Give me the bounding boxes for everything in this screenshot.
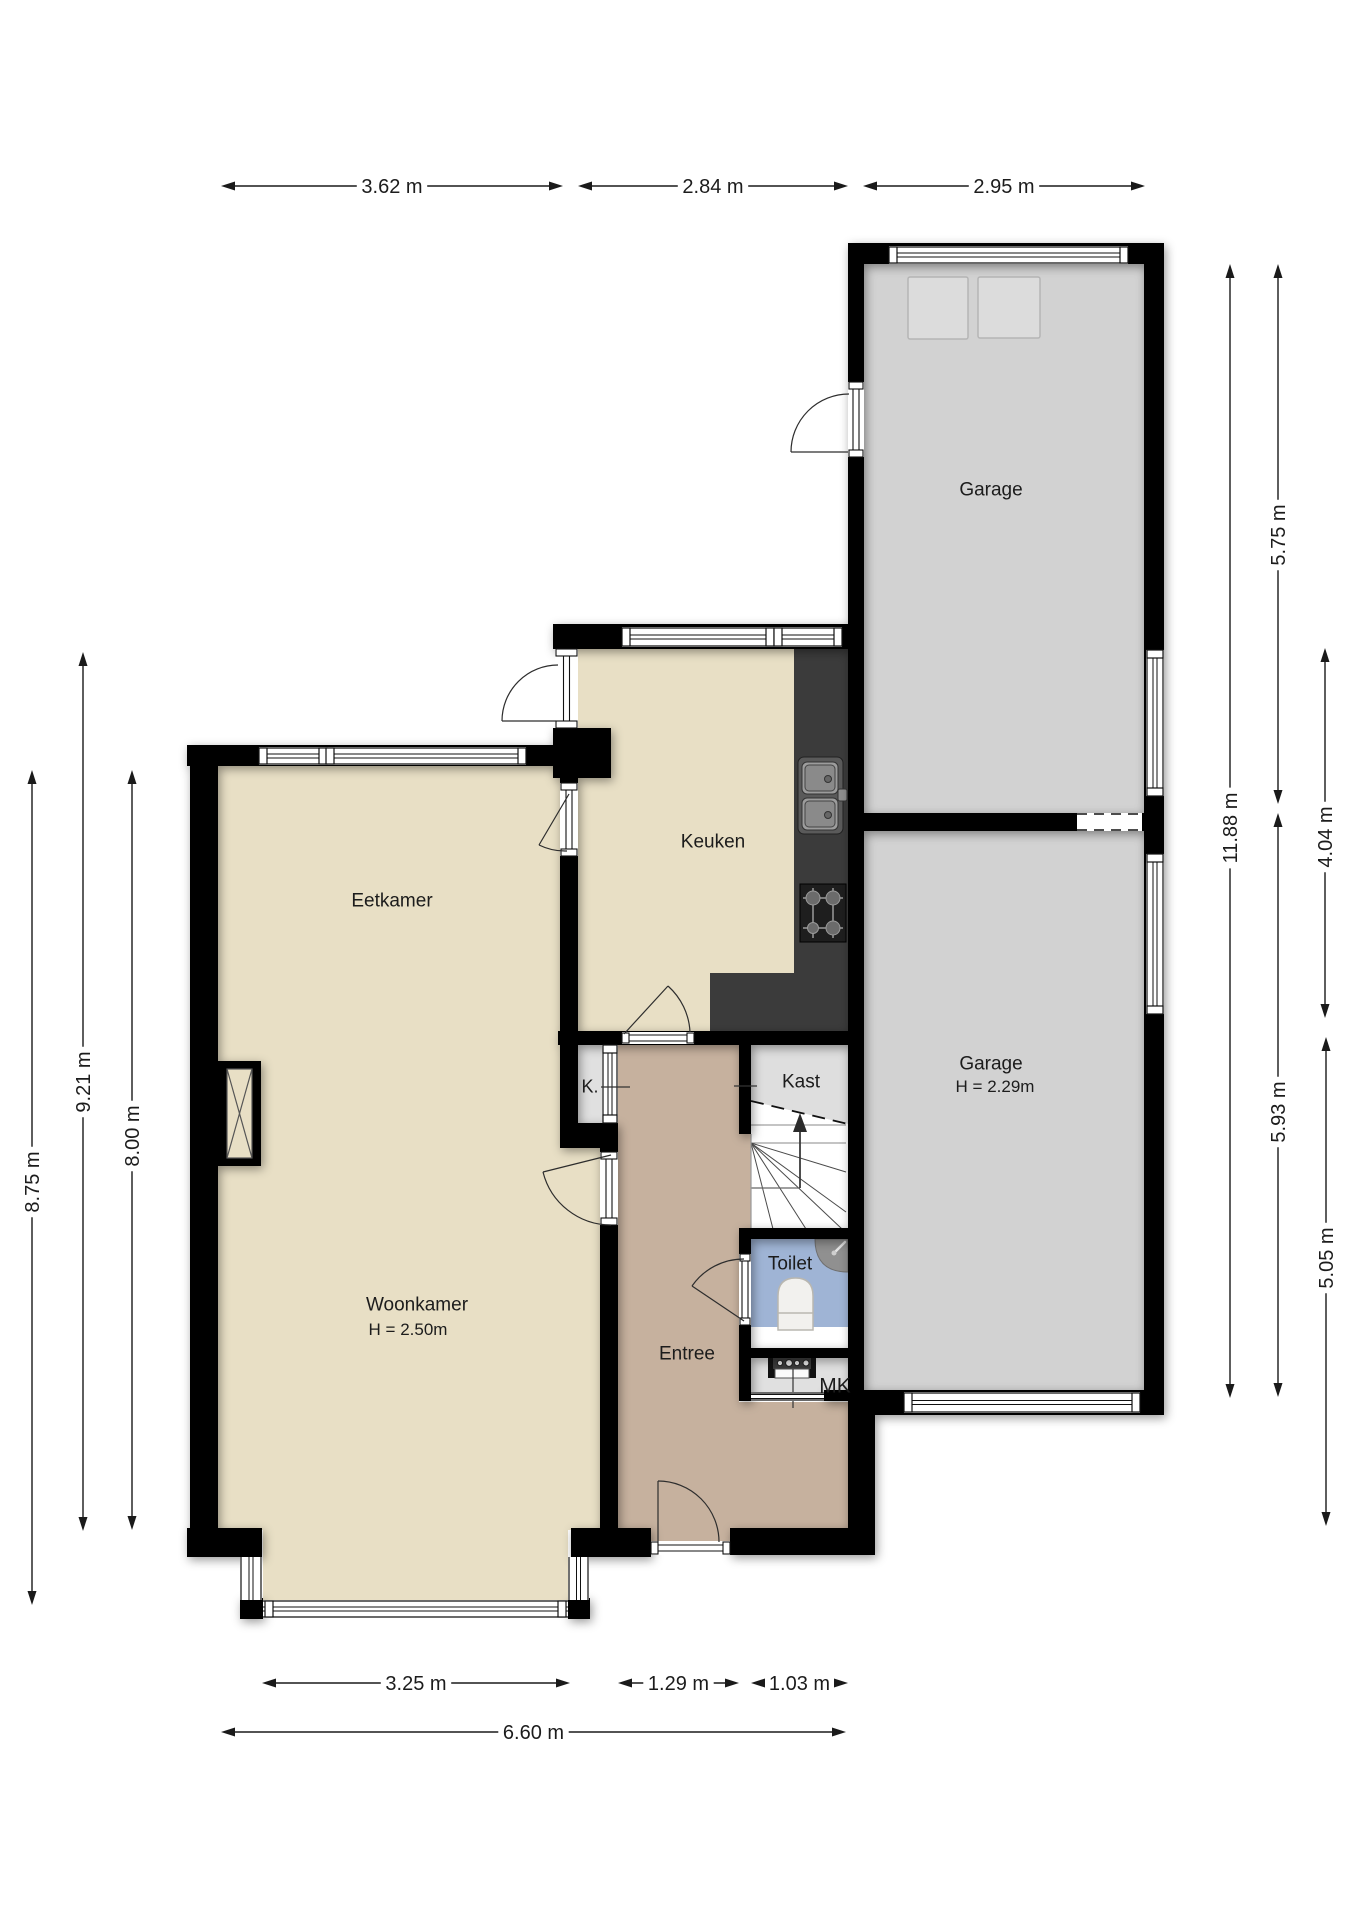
svg-text:6.60 m: 6.60 m [503, 1722, 564, 1744]
svg-text:1.29 m: 1.29 m [648, 1673, 709, 1695]
svg-text:MK: MK [819, 1374, 851, 1397]
svg-text:5.75 m: 5.75 m [1268, 504, 1290, 565]
svg-text:8.75 m: 8.75 m [22, 1151, 44, 1212]
svg-text:2.95 m: 2.95 m [973, 176, 1034, 198]
svg-text:Woonkamer: Woonkamer [366, 1295, 469, 1316]
svg-text:Toilet: Toilet [768, 1254, 813, 1275]
svg-text:H = 2.50m: H = 2.50m [369, 1320, 448, 1339]
svg-text:Garage: Garage [959, 1054, 1022, 1075]
svg-text:Keuken: Keuken [681, 832, 745, 853]
svg-text:Garage: Garage [959, 480, 1022, 501]
svg-text:5.93 m: 5.93 m [1268, 1081, 1290, 1142]
svg-text:5.05 m: 5.05 m [1316, 1227, 1338, 1288]
svg-text:H = 2.29m: H = 2.29m [956, 1077, 1035, 1096]
svg-text:8.00 m: 8.00 m [122, 1105, 144, 1166]
svg-text:9.21 m: 9.21 m [73, 1051, 95, 1112]
svg-text:Entree: Entree [659, 1344, 715, 1365]
svg-text:1.03 m: 1.03 m [769, 1673, 830, 1695]
svg-text:4.04 m: 4.04 m [1315, 806, 1337, 867]
svg-text:K.: K. [581, 1076, 598, 1096]
svg-text:Kast: Kast [782, 1072, 821, 1093]
svg-text:3.62 m: 3.62 m [361, 176, 422, 198]
svg-text:11.88 m: 11.88 m [1220, 793, 1242, 864]
svg-text:Eetkamer: Eetkamer [351, 891, 433, 912]
svg-text:3.25 m: 3.25 m [385, 1673, 446, 1695]
svg-text:2.84 m: 2.84 m [682, 176, 743, 198]
